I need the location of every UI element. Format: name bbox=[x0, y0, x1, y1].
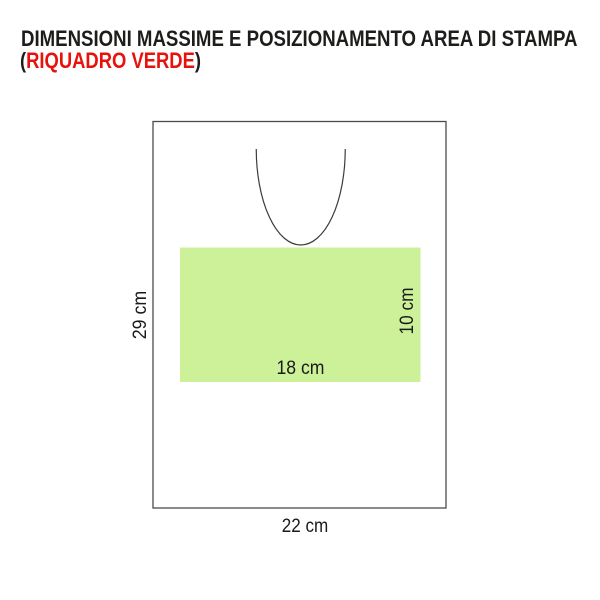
svg-text:29 cm: 29 cm bbox=[130, 291, 151, 340]
svg-text:10 cm: 10 cm bbox=[397, 288, 418, 335]
svg-text:22 cm: 22 cm bbox=[282, 516, 329, 537]
svg-text:18 cm: 18 cm bbox=[277, 358, 325, 379]
svg-text:(RIQUADRO VERDE): (RIQUADRO VERDE) bbox=[20, 48, 201, 73]
